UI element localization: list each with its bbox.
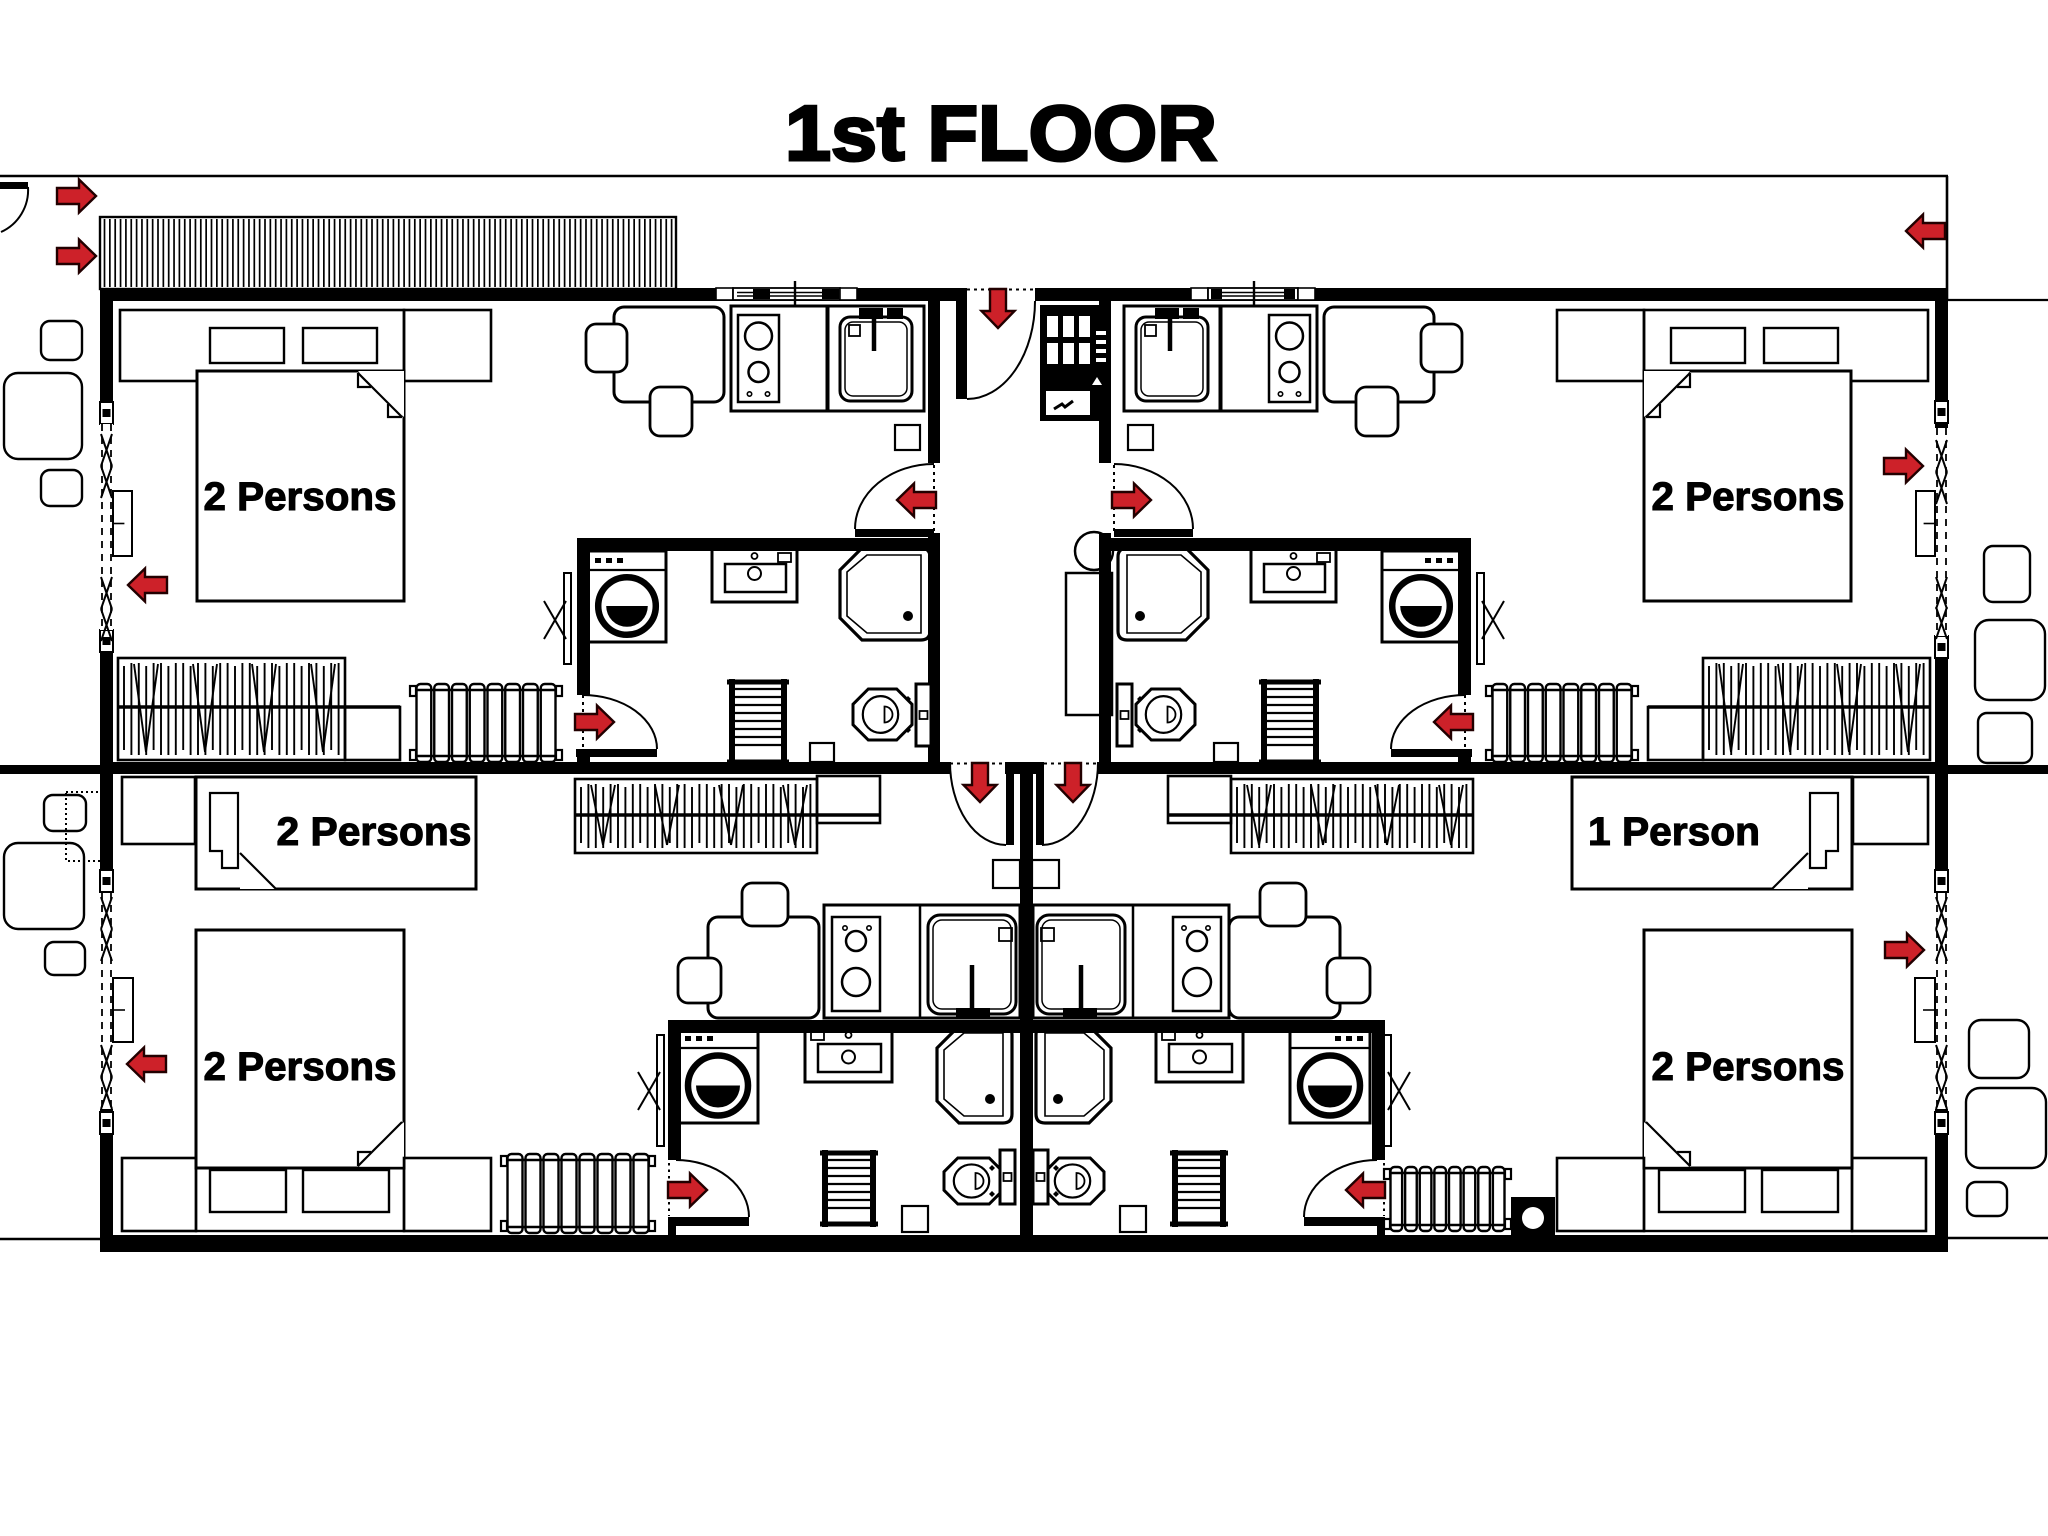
svg-text:2 Persons: 2 Persons <box>204 475 397 519</box>
svg-text:2 Persons: 2 Persons <box>277 810 472 854</box>
svg-text:2 Persons: 2 Persons <box>1652 475 1845 519</box>
svg-text:2 Persons: 2 Persons <box>1652 1045 1845 1089</box>
svg-text:2 Persons: 2 Persons <box>204 1045 397 1089</box>
svg-text:1st FLOOR: 1st FLOOR <box>785 89 1217 177</box>
svg-text:1 Person: 1 Person <box>1588 810 1760 854</box>
